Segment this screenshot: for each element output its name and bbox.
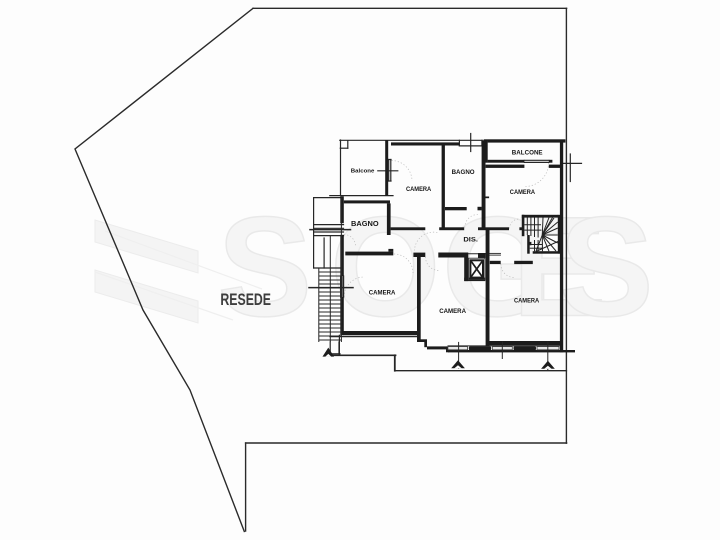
svg-text:CAMERA: CAMERA bbox=[369, 289, 396, 296]
svg-text:S: S bbox=[218, 188, 313, 347]
svg-text:DIS.: DIS. bbox=[463, 237, 478, 244]
svg-text:BAGNO: BAGNO bbox=[452, 169, 475, 176]
svg-text:RESEDE: RESEDE bbox=[220, 290, 271, 309]
svg-text:BALCONE: BALCONE bbox=[512, 149, 543, 156]
svg-text:CAMERA: CAMERA bbox=[510, 189, 535, 196]
svg-text:CAMERA: CAMERA bbox=[439, 308, 466, 315]
svg-text:CAMERA: CAMERA bbox=[514, 297, 539, 304]
svg-text:Balcone: Balcone bbox=[351, 168, 375, 174]
svg-text:O: O bbox=[330, 188, 440, 347]
svg-text:S: S bbox=[559, 188, 654, 347]
svg-text:CAMERA: CAMERA bbox=[406, 186, 431, 193]
svg-text:BAGNO: BAGNO bbox=[351, 221, 379, 228]
